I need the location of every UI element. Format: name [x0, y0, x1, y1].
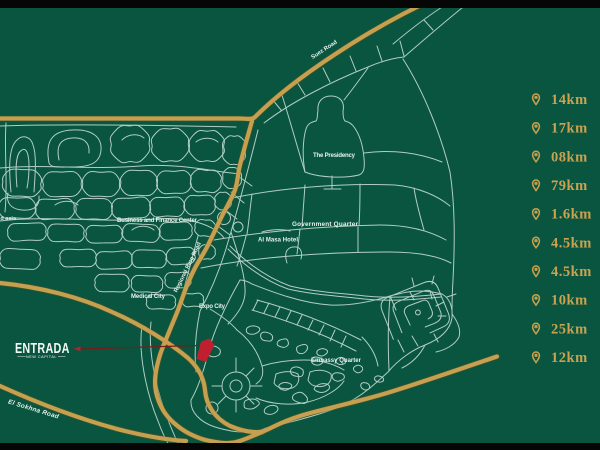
svg-text:d axis: d axis — [0, 216, 16, 222]
svg-text:Business and Finance Center: Business and Finance Center — [117, 218, 198, 224]
svg-text:Medical City: Medical City — [131, 294, 166, 300]
svg-text:NEW CAPITAL: NEW CAPITAL — [26, 355, 57, 359]
svg-text:The Presidency: The Presidency — [313, 153, 356, 159]
svg-text:Expo City: Expo City — [199, 304, 226, 310]
svg-text:4.5km: 4.5km — [551, 235, 592, 251]
svg-text:25km: 25km — [551, 321, 588, 337]
svg-text:14km: 14km — [551, 92, 588, 108]
svg-text:Government Quarter: Government Quarter — [292, 221, 359, 228]
svg-text:10km: 10km — [551, 293, 588, 309]
svg-text:1.6km: 1.6km — [551, 207, 592, 223]
svg-text:79km: 79km — [551, 178, 588, 194]
svg-text:12km: 12km — [551, 350, 588, 366]
svg-text:17km: 17km — [551, 121, 588, 137]
svg-text:08km: 08km — [551, 149, 588, 165]
svg-text:ENTRADA: ENTRADA — [15, 339, 70, 356]
svg-text:Al Masa Hotel: Al Masa Hotel — [258, 238, 298, 244]
svg-text:4.5km: 4.5km — [551, 264, 592, 280]
svg-text:Embassy Quarter: Embassy Quarter — [311, 358, 362, 364]
